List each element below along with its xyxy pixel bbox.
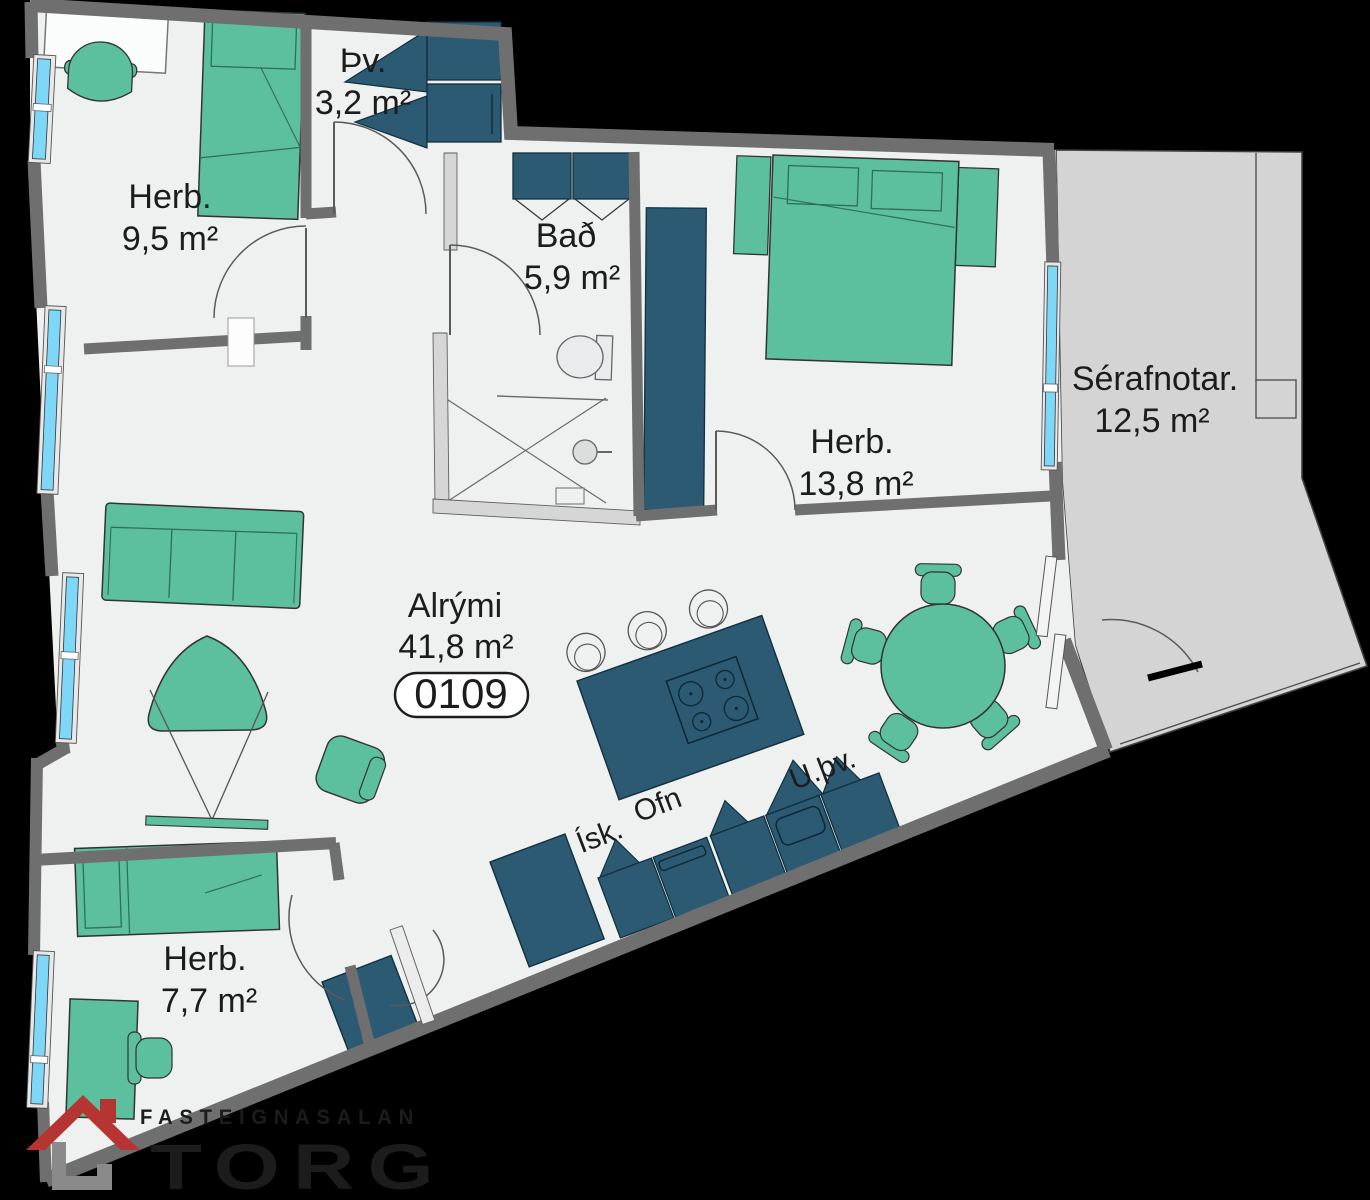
chair-bedroom-77 (128, 1032, 172, 1084)
logo-top-text: FASTEIGNASALAN (140, 1106, 420, 1129)
label-bedroom-138-name: Herb. (810, 423, 893, 461)
label-living-area: 41,8 m² (398, 628, 513, 666)
label-bedroom-95-name: Herb. (128, 178, 211, 216)
bed-bedroom-95 (198, 10, 305, 219)
label-bedroom-77-area: 7,7 m² (161, 982, 257, 1020)
label-terrace-area: 12,5 m² (1094, 402, 1209, 440)
window-bedroom-138 (1041, 262, 1061, 470)
label-bedroom-95-area: 9,5 m² (122, 220, 218, 258)
floorplan-page: Herb. 9,5 m² Þv. 3,2 m² Bað 5,9 m² Herb.… (0, 0, 1370, 1200)
label-living-name: Alrými (408, 587, 502, 625)
floorplan-drawing: Herb. 9,5 m² Þv. 3,2 m² Bað 5,9 m² Herb.… (0, 0, 1370, 1200)
label-terrace-name: Sérafnotar. (1072, 360, 1238, 398)
wall-niche (228, 318, 254, 366)
label-bedroom-77-name: Herb. (163, 940, 246, 978)
label-bedroom-138-area: 13,8 m² (798, 465, 913, 503)
toilet (556, 334, 613, 380)
logo-name: TORG (150, 1131, 447, 1200)
label-laundry-name: Þv. (340, 42, 387, 80)
label-bathroom-area: 5,9 m² (524, 259, 620, 297)
terrace-serafnotar (1056, 150, 1367, 752)
dining-table (881, 604, 1005, 728)
wardrobe-bedroom-138 (644, 208, 707, 511)
sofa (102, 503, 304, 609)
unit-number: 0109 (414, 670, 507, 717)
label-laundry-area: 3,2 m² (315, 84, 411, 122)
label-bathroom-name: Bað (536, 217, 597, 255)
shower-drain (573, 440, 597, 464)
unit-number-badge: 0109 (395, 670, 528, 717)
